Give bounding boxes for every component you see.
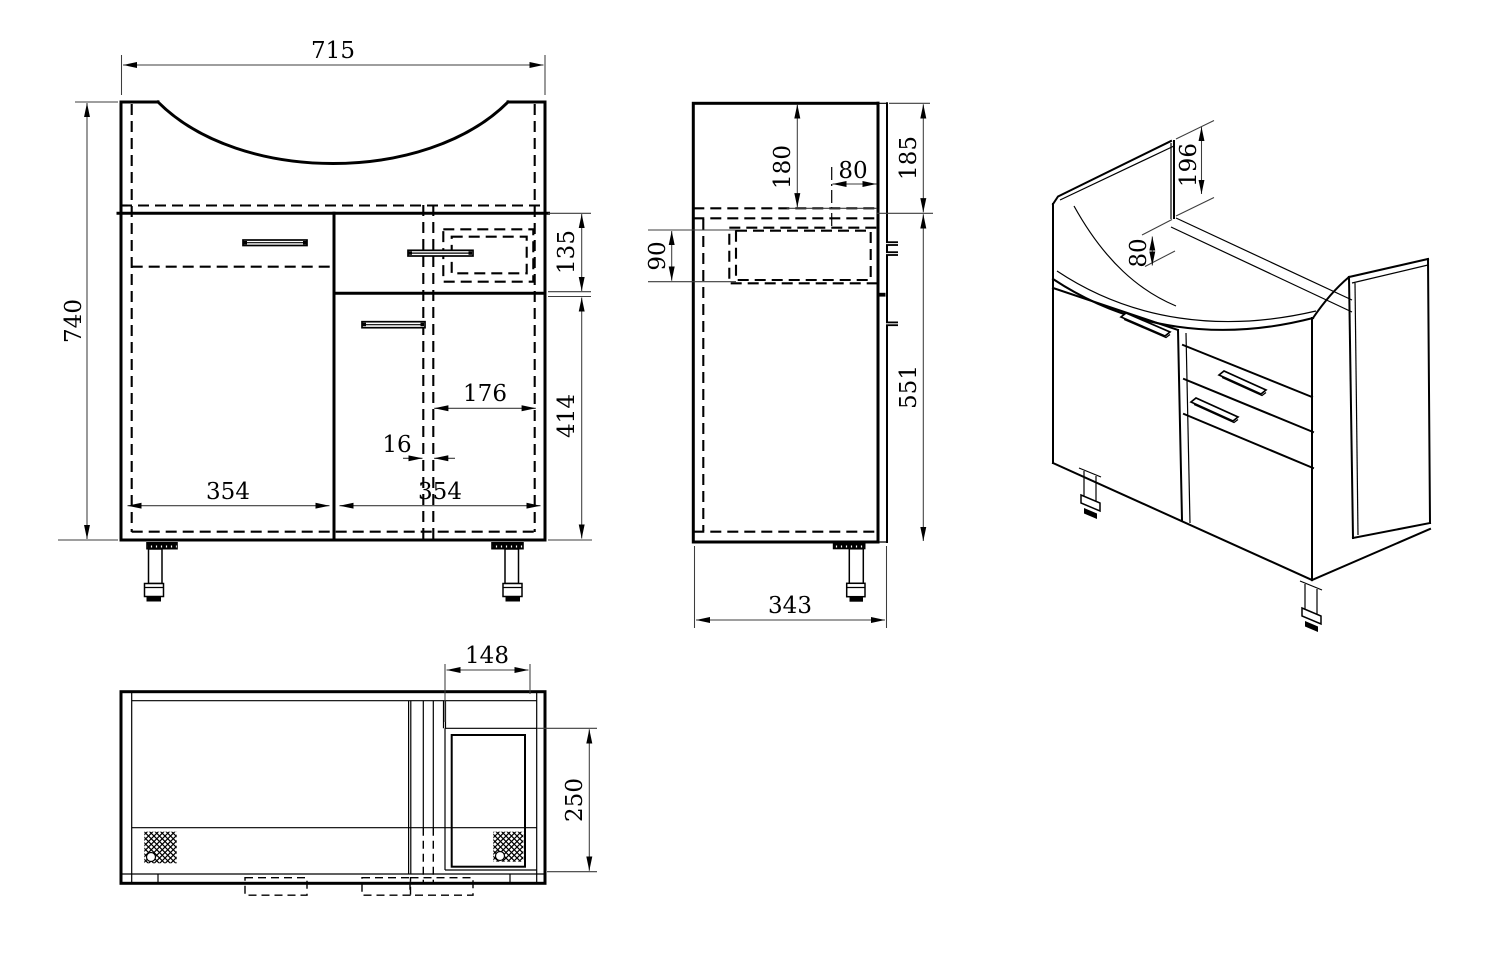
dim-recess-width-148: 148	[465, 643, 509, 669]
dim-lower-height-414: 414	[554, 394, 580, 438]
dim-left-door-354: 354	[206, 479, 250, 505]
front-view: 715 740 135 414 176 16 354 354	[58, 38, 592, 602]
side-view: 180 80 185 551 90 343	[645, 103, 933, 628]
vanity-cabinet-technical-drawing: 715 740 135 414 176 16 354 354	[0, 0, 1500, 963]
dim-body-height-551: 551	[896, 365, 922, 409]
drawing-sheet: 715 740 135 414 176 16 354 354	[0, 0, 1500, 963]
dim-drawer-side-90: 90	[645, 241, 671, 270]
dim-back-edge-196: 196	[1176, 143, 1202, 187]
iso-right-panel-back-edge	[1428, 259, 1430, 523]
dim-gap-16: 16	[382, 432, 411, 458]
dim-drawer-height-135: 135	[554, 230, 580, 274]
iso-right-panel-front-edge	[1349, 277, 1353, 538]
dim-right-door-354: 354	[418, 479, 462, 505]
dim-depth-343: 343	[768, 593, 812, 619]
front-dimensions: 715 740 135 414 176 16 354 354	[58, 38, 592, 540]
iso-rim-corner-curve	[1313, 277, 1349, 318]
iso-right-door-top	[1184, 414, 1313, 468]
dim-width-715: 715	[311, 38, 355, 64]
iso-legs	[1079, 468, 1322, 632]
side-hidden-lines	[693, 208, 878, 531]
dim-rail-80: 80	[1126, 238, 1152, 267]
front-handles	[243, 240, 473, 328]
dim-back-offset-80: 80	[838, 158, 867, 184]
front-left-leg	[145, 543, 178, 602]
iso-divider-line2	[1186, 333, 1190, 523]
iso-back-rail-bottom	[1171, 227, 1352, 312]
side-leg	[833, 543, 865, 602]
front-right-leg	[492, 543, 524, 602]
dim-offset-176: 176	[463, 381, 507, 407]
front-basin-curve	[158, 102, 508, 164]
dim-recess-depth-250: 250	[562, 778, 588, 822]
dim-top-section-185: 185	[896, 136, 922, 180]
iso-bottom-right-edge	[1312, 529, 1430, 580]
bottom-outline	[121, 692, 545, 884]
isometric-view: 196 80	[1053, 121, 1430, 633]
iso-left-door-top	[1053, 288, 1178, 330]
bottom-view: 148 250	[121, 643, 597, 895]
side-dimensions: 180 80 185 551 90 343	[645, 103, 933, 628]
iso-back-rail-top	[1176, 218, 1352, 300]
bottom-handle-outlines	[245, 878, 473, 896]
iso-right-panel-bottom	[1353, 523, 1430, 538]
iso-basin-curve-outer	[1053, 279, 1313, 330]
iso-basin-curve-inner	[1074, 206, 1176, 306]
iso-divider-line1	[1178, 330, 1182, 520]
dim-height-740: 740	[61, 299, 87, 343]
side-wall-screws	[877, 241, 901, 326]
bottom-leg-plates	[144, 832, 523, 864]
dim-basin-depth-180: 180	[770, 145, 796, 189]
iso-bottom-front-edge	[1053, 463, 1312, 580]
